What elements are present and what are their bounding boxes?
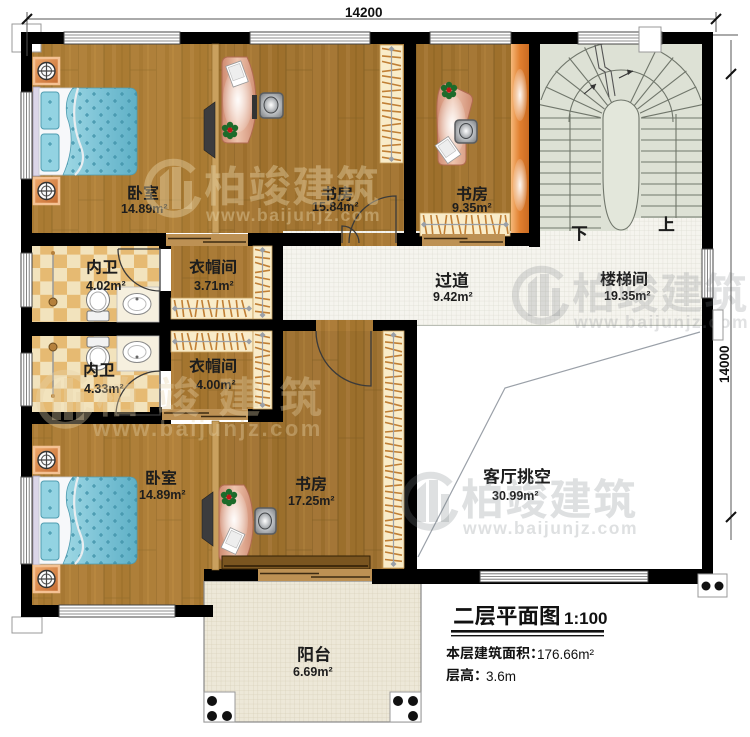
svg-text:www.baijunjz.com: www.baijunjz.com [462,518,638,538]
svg-text:17.25m²: 17.25m² [288,494,335,508]
svg-text:6.69m²: 6.69m² [293,665,333,679]
svg-text:9.35m²: 9.35m² [452,201,492,215]
svg-text:176.66m²: 176.66m² [537,647,595,662]
svg-text:14200: 14200 [345,5,383,20]
svg-text:www.baijunjz.com: www.baijunjz.com [92,416,323,441]
svg-text:9.42m²: 9.42m² [433,290,473,304]
svg-text:www.baijunjz.com: www.baijunjz.com [205,205,381,225]
svg-text:4.02m²: 4.02m² [86,279,126,293]
svg-text:3.6m: 3.6m [486,669,516,684]
svg-text:14000: 14000 [717,345,732,383]
svg-text:1:100: 1:100 [564,609,607,628]
svg-text:3.71m²: 3.71m² [194,279,234,293]
svg-text:14.89m²: 14.89m² [139,488,186,502]
